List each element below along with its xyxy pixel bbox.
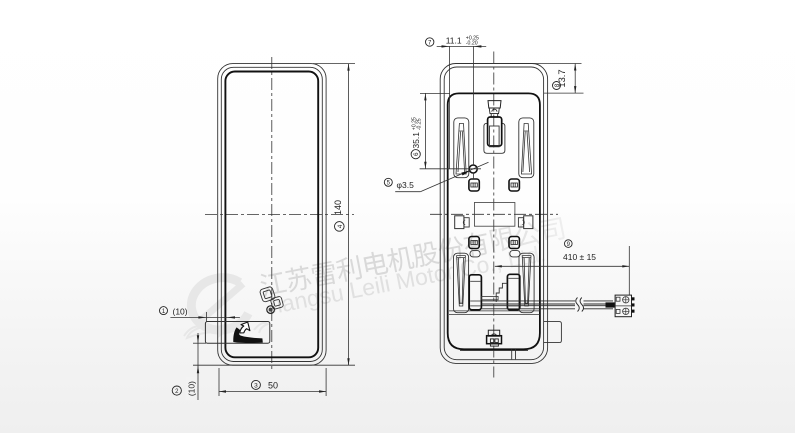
- svg-text:3: 3: [254, 382, 258, 389]
- svg-text:6: 6: [414, 152, 420, 156]
- svg-text:-0.20: -0.20: [466, 41, 478, 47]
- svg-text:13.7: 13.7: [557, 69, 567, 87]
- svg-text:410 ± 15: 410 ± 15: [563, 252, 596, 262]
- svg-text:35.1: 35.1: [411, 132, 421, 149]
- svg-text:2: 2: [175, 389, 179, 395]
- svg-text:11.1: 11.1: [446, 35, 462, 45]
- svg-text:(10): (10): [187, 381, 197, 396]
- svg-text:4: 4: [337, 224, 344, 228]
- svg-text:(10): (10): [173, 306, 188, 316]
- svg-text:140: 140: [333, 200, 343, 215]
- svg-text:50: 50: [268, 380, 278, 390]
- svg-text:-0.25: -0.25: [417, 118, 423, 130]
- svg-text:φ3.5: φ3.5: [397, 180, 415, 190]
